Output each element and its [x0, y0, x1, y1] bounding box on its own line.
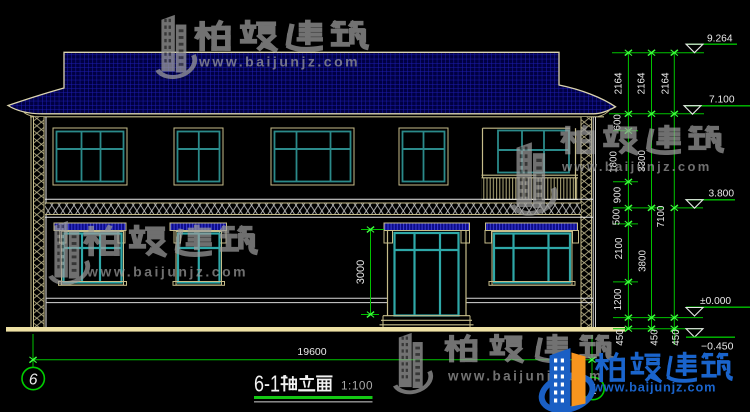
- svg-text:2164: 2164: [637, 72, 648, 94]
- svg-text:1200: 1200: [613, 288, 624, 310]
- svg-text:www.baijunjz.com: www.baijunjz.com: [198, 54, 360, 70]
- svg-text:6: 6: [29, 372, 38, 389]
- svg-text:2164: 2164: [614, 72, 625, 94]
- svg-text:2100: 2100: [614, 237, 625, 259]
- svg-text:www.baijunjz.com: www.baijunjz.com: [561, 159, 712, 174]
- svg-text:450: 450: [615, 329, 626, 346]
- svg-text:6-1: 6-1: [254, 371, 280, 397]
- svg-text:3800: 3800: [638, 250, 649, 272]
- svg-text:www.baijunjz.com: www.baijunjz.com: [86, 264, 248, 280]
- svg-text:2164: 2164: [661, 72, 672, 94]
- svg-text:500: 500: [612, 208, 623, 225]
- svg-text:7.100: 7.100: [709, 95, 735, 106]
- svg-text:1:100: 1:100: [341, 379, 373, 393]
- svg-text:www.baijunjz.com: www.baijunjz.com: [592, 380, 716, 395]
- svg-text:7100: 7100: [656, 205, 667, 227]
- svg-text:19600: 19600: [297, 346, 326, 358]
- svg-text:3.800: 3.800: [709, 188, 735, 199]
- svg-text:−0.450: −0.450: [701, 341, 734, 353]
- svg-text:9.264: 9.264: [707, 34, 733, 45]
- svg-text:±0.000: ±0.000: [700, 296, 731, 307]
- svg-text:3000: 3000: [355, 260, 367, 284]
- svg-text:900: 900: [613, 186, 624, 203]
- svg-text:450: 450: [671, 329, 682, 346]
- svg-text:450: 450: [650, 329, 661, 346]
